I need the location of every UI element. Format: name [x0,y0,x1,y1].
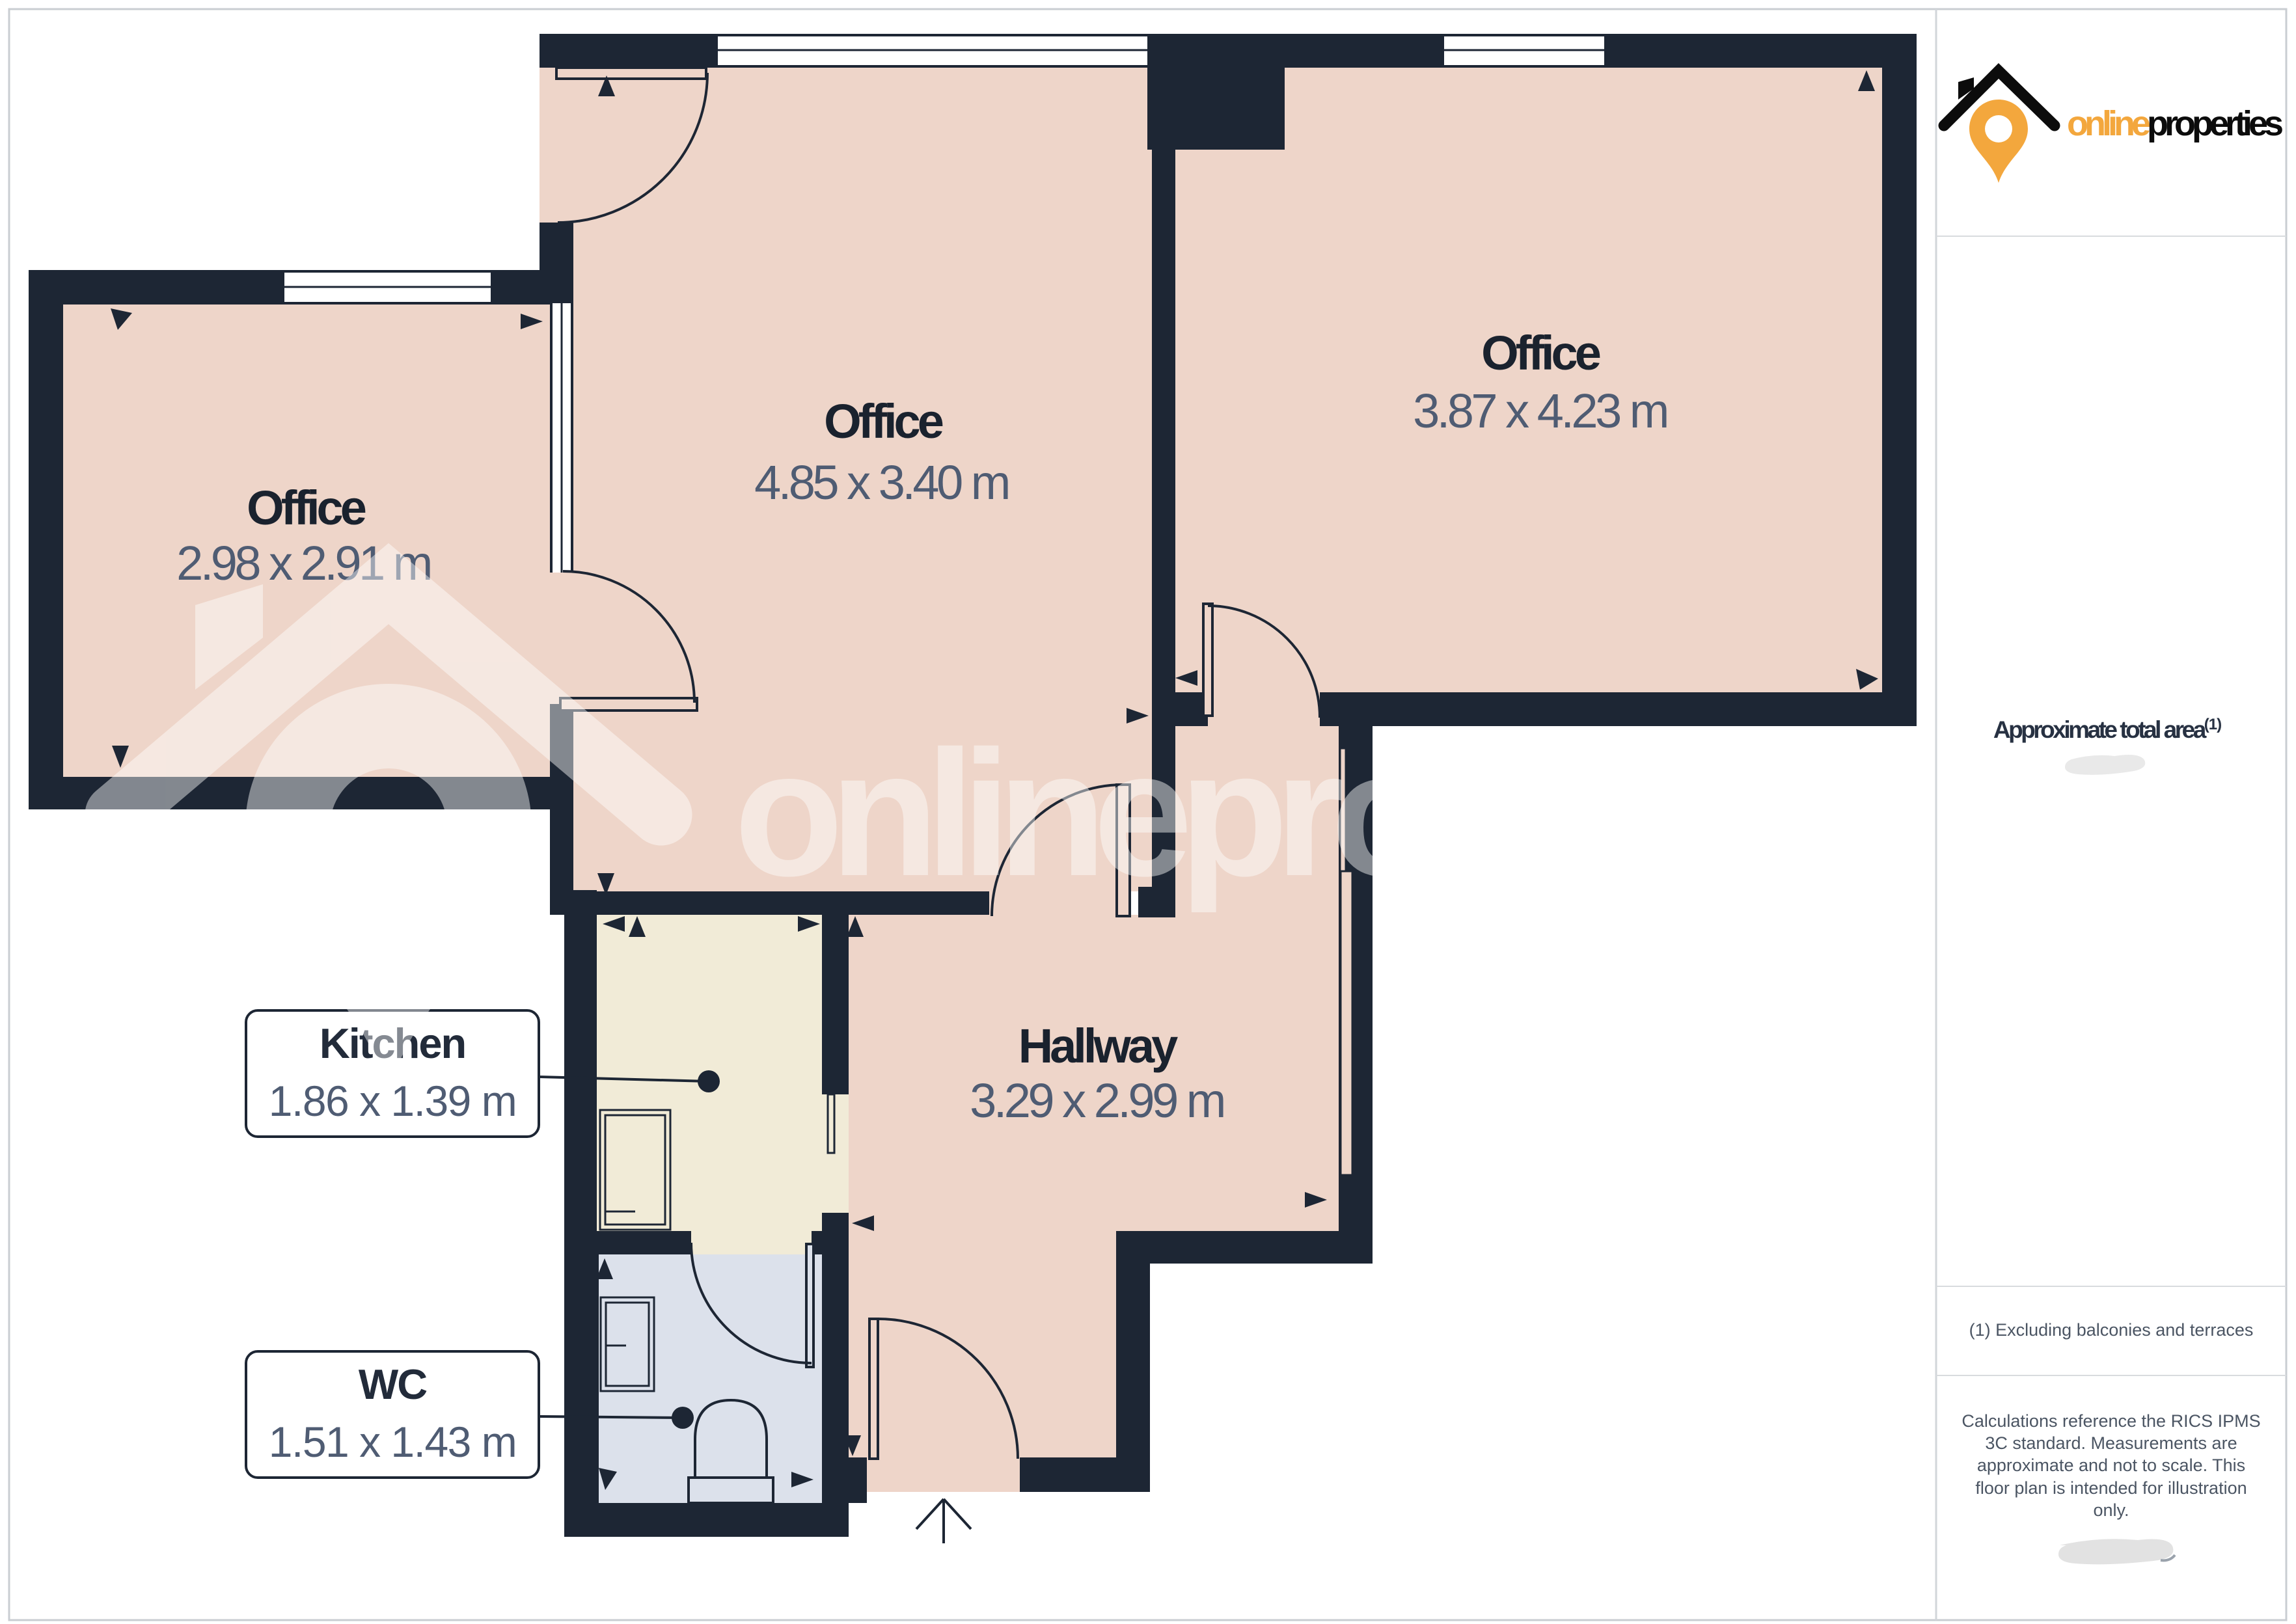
svg-text:Office: Office [824,394,943,448]
svg-text:Calculations reference the RIC: Calculations reference the RICS IPMS [1961,1411,2260,1431]
svg-text:1.51 x 1.43 m: 1.51 x 1.43 m [269,1418,516,1466]
svg-text:Office: Office [1481,326,1600,380]
svg-text:floor plan is intended for ill: floor plan is intended for illustration [1975,1478,2247,1498]
svg-text:onlineproperties: onlineproperties [2067,104,2282,143]
svg-text:only.: only. [2093,1500,2129,1520]
svg-text:(1) Excluding balconies and te: (1) Excluding balconies and terraces [1969,1320,2254,1340]
svg-text:approximate and not to scale.: approximate and not to scale. This [1977,1455,2245,1475]
svg-text:Approximate total area(1): Approximate total area(1) [1993,716,2221,743]
svg-text:3.29 x 2.99 m: 3.29 x 2.99 m [970,1074,1223,1128]
svg-text:WC: WC [359,1360,427,1408]
svg-text:Hallway: Hallway [1018,1019,1178,1073]
svg-text:3C standard. Measurements are: 3C standard. Measurements are [1985,1433,2237,1453]
svg-text:4.85 x 3.40 m: 4.85 x 3.40 m [754,455,1008,509]
svg-text:1.86 x 1.39 m: 1.86 x 1.39 m [269,1077,516,1125]
svg-text:3.87 x 4.23 m: 3.87 x 4.23 m [1413,384,1667,438]
svg-text:onlineproperties: onlineproperties [734,714,1924,914]
svg-text:Office: Office [247,481,366,535]
